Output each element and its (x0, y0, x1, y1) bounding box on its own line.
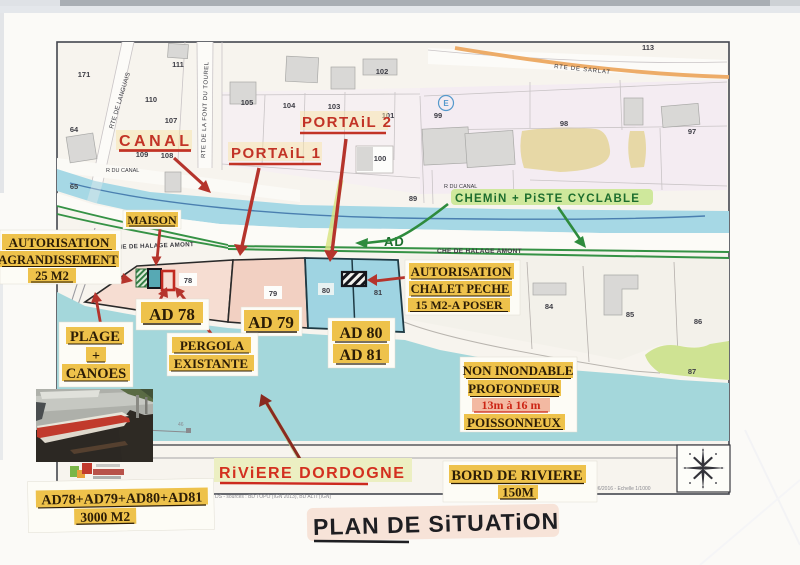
svg-text:PORTAiL 2: PORTAiL 2 (302, 114, 392, 131)
svg-text:CANAL: CANAL (119, 133, 193, 150)
svg-text:46: 46 (178, 422, 184, 428)
svg-text:AD 81: AD 81 (339, 347, 382, 364)
svg-text:CHALET PECHE: CHALET PECHE (411, 282, 510, 296)
svg-text:R DU CANAL: R DU CANAL (106, 168, 139, 174)
svg-text:97: 97 (688, 127, 696, 136)
svg-text:PERGOLA: PERGOLA (180, 338, 245, 353)
svg-text:150M: 150M (502, 485, 534, 500)
svg-text:100: 100 (374, 154, 387, 163)
svg-text:99: 99 (434, 111, 442, 120)
svg-text:AD 79: AD 79 (248, 313, 294, 332)
svg-text:25 M2: 25 M2 (35, 269, 69, 283)
svg-text:3000 M2: 3000 M2 (80, 509, 130, 525)
svg-text:86: 86 (694, 317, 702, 326)
svg-text:110: 110 (145, 95, 157, 104)
svg-text:104: 104 (283, 101, 296, 110)
svg-text:13m à 16 m: 13m à 16 m (482, 398, 541, 412)
svg-text:171: 171 (78, 70, 91, 79)
svg-text:POISSONNEUX: POISSONNEUX (467, 415, 562, 430)
svg-text:BORD DE RIVIERE: BORD DE RIVIERE (451, 468, 582, 484)
svg-text:RiViERE DORDOGNE: RiViERE DORDOGNE (219, 465, 405, 482)
svg-text:AUTORISATION: AUTORISATION (9, 235, 110, 250)
svg-text:CANOES: CANOES (66, 366, 126, 382)
svg-text:EXISTANTE: EXISTANTE (174, 356, 248, 371)
svg-text:85: 85 (626, 310, 634, 319)
svg-text:E: E (443, 99, 449, 108)
svg-text:PLAGE: PLAGE (70, 329, 120, 345)
svg-text:AD 78: AD 78 (149, 305, 195, 324)
svg-text:113: 113 (642, 43, 654, 52)
svg-text:29/06/2016 - Echelle 1/1000: 29/06/2016 - Echelle 1/1000 (588, 486, 651, 492)
svg-text:107: 107 (165, 116, 178, 125)
svg-text:15 M2-A POSER: 15 M2-A POSER (415, 298, 503, 312)
svg-text:79: 79 (269, 289, 277, 298)
svg-text:84: 84 (545, 302, 554, 311)
svg-text:AGRANDISSEMENT: AGRANDISSEMENT (0, 253, 118, 267)
svg-text:108: 108 (161, 151, 174, 160)
svg-text:AUTORISATION: AUTORISATION (411, 264, 512, 279)
svg-text:111: 111 (172, 60, 184, 69)
svg-text:PROFONDEUR: PROFONDEUR (468, 381, 560, 396)
svg-text:80: 80 (322, 286, 330, 295)
svg-text:98: 98 (560, 119, 568, 128)
svg-text:105: 105 (241, 98, 254, 107)
svg-text:DS - sources : BD TOPO (IGN 2: DS - sources : BD TOPO (IGN 2013), BD AL… (215, 494, 331, 500)
svg-text:64: 64 (70, 125, 79, 134)
svg-text:81: 81 (374, 288, 382, 297)
svg-text:NON INONDABLE: NON INONDABLE (463, 363, 574, 378)
svg-text:87: 87 (688, 367, 696, 376)
svg-text:78: 78 (184, 276, 192, 285)
svg-text:103: 103 (328, 102, 341, 111)
svg-text:65: 65 (70, 182, 78, 191)
svg-text:AD 80: AD 80 (339, 325, 382, 342)
svg-text:89: 89 (409, 194, 417, 203)
svg-text:PORTAiL 1: PORTAiL 1 (231, 145, 321, 162)
svg-text:CHEMiN + PiSTE CYCLABLE: CHEMiN + PiSTE CYCLABLE (455, 193, 640, 205)
svg-text:MAISON: MAISON (127, 213, 177, 227)
svg-text:102: 102 (376, 67, 389, 76)
svg-text:CHE DE HALAGE AMONT: CHE DE HALAGE AMONT (437, 248, 522, 255)
